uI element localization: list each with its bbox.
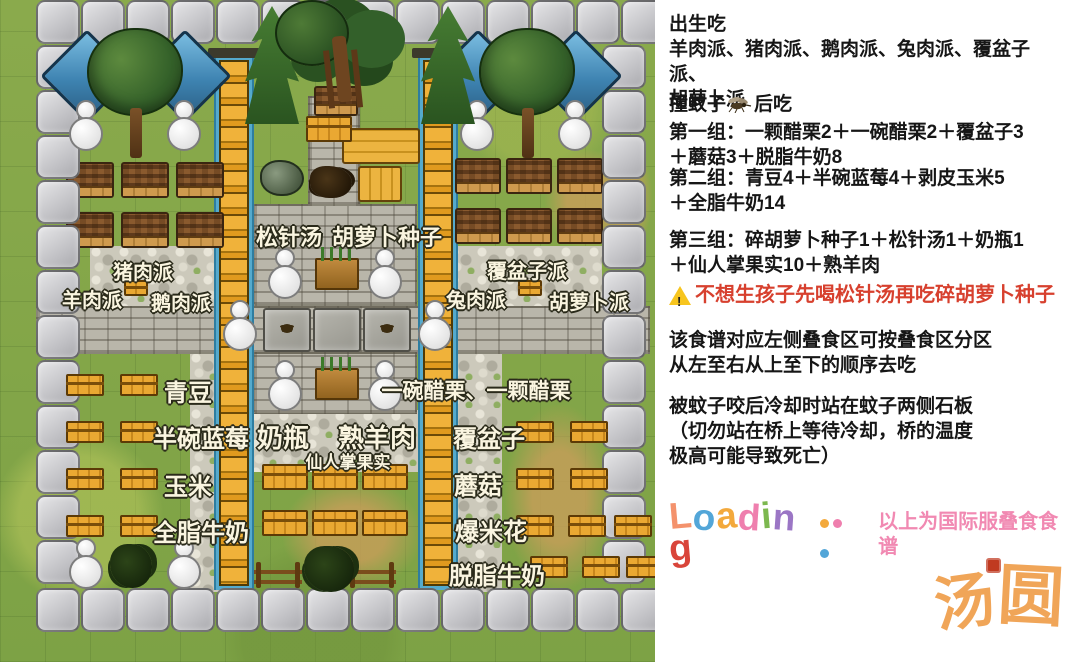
map-label: 覆盆子 [453, 419, 525, 454]
crate-sprite [120, 468, 158, 490]
planter-sprite [315, 258, 359, 290]
map-label: 胡萝卜种子 [332, 220, 442, 252]
screenshot: 松针汤胡萝卜种子猪肉派羊肉派鹅肉派覆盆子派兔肉派胡萝卜派青豆一碗醋栗、一颗醋栗半… [0, 0, 1080, 662]
tile-sprite [396, 588, 440, 632]
tile-sprite [36, 0, 80, 44]
crateBig-sprite [262, 464, 308, 490]
mosquito-sprite [381, 324, 393, 333]
loading-letter: d [737, 504, 762, 531]
crate-sprite [570, 421, 608, 443]
tile-sprite [576, 588, 620, 632]
crate-sprite [568, 515, 606, 537]
tile-sprite [602, 315, 646, 359]
bush-sprite [110, 544, 152, 588]
group2-text: 第二组：青豆4＋半碗蓝莓4＋剥皮玉米5 ＋全脂牛奶14 [669, 166, 1067, 216]
loading-dot [833, 519, 842, 528]
crate-sprite [120, 374, 158, 396]
loading-letter: n [772, 504, 797, 531]
crate-sprite [66, 374, 104, 396]
map-label: 脱脂牛奶 [449, 556, 545, 591]
loading-dot [820, 549, 829, 558]
crate-sprite [570, 468, 608, 490]
loading-letter: g [668, 534, 694, 561]
tile-sprite [36, 180, 80, 224]
map-label: 仙人掌果实 [306, 448, 391, 473]
warning-text: 不想生孩子先喝松针汤再吃碎胡萝卜种子 [695, 283, 1055, 308]
loading-caption: 以上为国际服叠食食谱 [878, 510, 1073, 560]
map-label: 猪肉派 [113, 256, 173, 285]
warning-icon [669, 286, 691, 305]
plot-sprite [176, 212, 224, 248]
tile-sprite [621, 588, 655, 632]
map-label: 半碗蓝莓 [153, 419, 249, 454]
loading-letter: o [692, 504, 717, 531]
tile-sprite [126, 588, 170, 632]
plot-sprite [506, 208, 552, 244]
snowman-sprite [368, 248, 402, 300]
rock-sprite [260, 160, 304, 196]
note-order: 该食谱对应左侧叠食区可按叠食区分区 从左至右从上至下的顺序去吃 [669, 328, 1067, 378]
game-map: 松针汤胡萝卜种子猪肉派羊肉派鹅肉派覆盆子派兔肉派胡萝卜派青豆一碗醋栗、一颗醋栗半… [0, 0, 655, 662]
loading-dot [820, 519, 829, 528]
tile-sprite [602, 180, 646, 224]
map-label: 一碗醋栗、一颗醋栗 [382, 375, 571, 405]
tile-sprite [621, 0, 655, 44]
loading-letter: a [715, 502, 739, 529]
map-label: 玉米 [164, 467, 212, 502]
plot-sprite [557, 208, 603, 244]
map-label: 兔肉派 [446, 284, 506, 313]
watermark-logo: 汤 圆 [934, 556, 1064, 639]
mosquito-icon [728, 95, 752, 120]
tile-sprite [81, 588, 125, 632]
crate-sprite [66, 515, 104, 537]
watermark-char: 圆 [996, 554, 1066, 637]
map-label: 覆盆子派 [487, 255, 567, 284]
crate-sprite [66, 468, 104, 490]
tile-sprite [171, 588, 215, 632]
tile-sprite [531, 588, 575, 632]
bush-sprite [304, 546, 354, 592]
crate-sprite [614, 515, 652, 537]
tile-sprite [216, 588, 260, 632]
snowman-sprite [223, 300, 257, 352]
plot-sprite [506, 158, 552, 194]
plot-sprite [455, 208, 501, 244]
crateBig-sprite [312, 510, 358, 536]
tile-sprite [441, 588, 485, 632]
watermark-char: 汤 [929, 559, 1000, 647]
tile-sprite [36, 315, 80, 359]
loading-letter: L [668, 502, 694, 529]
warning: 不想生孩子先喝松针汤再吃碎胡萝卜种子 [669, 283, 1067, 308]
tile-sprite [306, 588, 350, 632]
signH-sprite [342, 128, 420, 164]
tile-sprite [351, 588, 395, 632]
tile-sprite [602, 450, 646, 494]
tile-sprite [261, 588, 305, 632]
crate-sprite [582, 556, 620, 578]
map-label: 爆米花 [455, 512, 527, 547]
plot-sprite [557, 158, 603, 194]
snowman-sprite [69, 538, 103, 590]
birth-title: 出生吃 [669, 12, 1067, 37]
slab-sprite [313, 308, 361, 352]
tile-sprite [602, 135, 646, 179]
mosquito-title: 撞蚊子后吃 [669, 92, 1067, 120]
treeRound-sprite [479, 28, 575, 158]
map-label: 奶瓶 [257, 418, 309, 455]
loading-logo: Loading 以上为国际服叠食食谱 [669, 512, 1073, 558]
tile-sprite [602, 360, 646, 404]
crate-sprite [306, 116, 352, 142]
signV-sprite [358, 166, 402, 202]
tile-sprite [36, 225, 80, 269]
crate-sprite [626, 556, 655, 578]
fence-sprite [348, 564, 396, 588]
tile-sprite [602, 90, 646, 134]
planter-sprite [315, 368, 359, 400]
mosquito-sprite [281, 324, 293, 333]
loading-dots [816, 505, 854, 565]
bigTree-sprite [267, 0, 417, 104]
plot-sprite [121, 212, 169, 248]
tile-sprite [486, 588, 530, 632]
group3-text: 第三组：碎胡萝卜种子1＋松针汤1＋奶瓶1 ＋仙人掌果实10＋熟羊肉 [669, 228, 1067, 278]
map-label: 胡萝卜派 [549, 286, 629, 315]
plot-sprite [121, 162, 169, 198]
map-label: 全脂牛奶 [153, 513, 249, 548]
crate-sprite [516, 468, 554, 490]
mosquito-title-pre: 撞蚊子 [669, 94, 726, 115]
plot-sprite [455, 158, 501, 194]
mosquito-section: 撞蚊子后吃 第一组：一颗醋栗2＋一碗醋栗2＋覆盆子3 ＋蘑菇3＋脱脂牛奶8 [669, 92, 1067, 170]
crateBig-sprite [262, 510, 308, 536]
tile-sprite [602, 225, 646, 269]
map-label: 羊肉派 [62, 284, 122, 313]
group1-text: 第一组：一颗醋栗2＋一碗醋栗2＋覆盆子3 ＋蘑菇3＋脱脂牛奶8 [669, 120, 1067, 170]
crate-sprite [66, 421, 104, 443]
map-label: 青豆 [164, 373, 212, 408]
mosquito-title-post: 后吃 [754, 94, 792, 115]
map-label: 松针汤 [256, 220, 322, 252]
pine-sprite [421, 6, 475, 124]
tile-sprite [602, 405, 646, 449]
loading-letters: Loading [669, 503, 816, 567]
guide-panel: 出生吃 羊肉派、猪肉派、鹅肉派、兔肉派、覆盆子派、 胡萝卜派 撞蚊子后吃 第一组… [655, 0, 1080, 662]
twigs-sprite [310, 166, 352, 198]
map-label: 蘑菇 [454, 466, 502, 501]
snowman-sprite [268, 360, 302, 412]
snowman-sprite [268, 248, 302, 300]
tile-sprite [36, 588, 80, 632]
fence-sprite [254, 564, 302, 588]
plot-sprite [176, 162, 224, 198]
crateBig-sprite [362, 510, 408, 536]
note-cooldown: 被蚊子咬后冷却时站在蚊子两侧石板 （切勿站在桥上等待冷却，桥的温度 极高可能导致… [669, 394, 1067, 469]
map-label: 鹅肉派 [151, 287, 211, 316]
treeRound-sprite [87, 28, 183, 158]
